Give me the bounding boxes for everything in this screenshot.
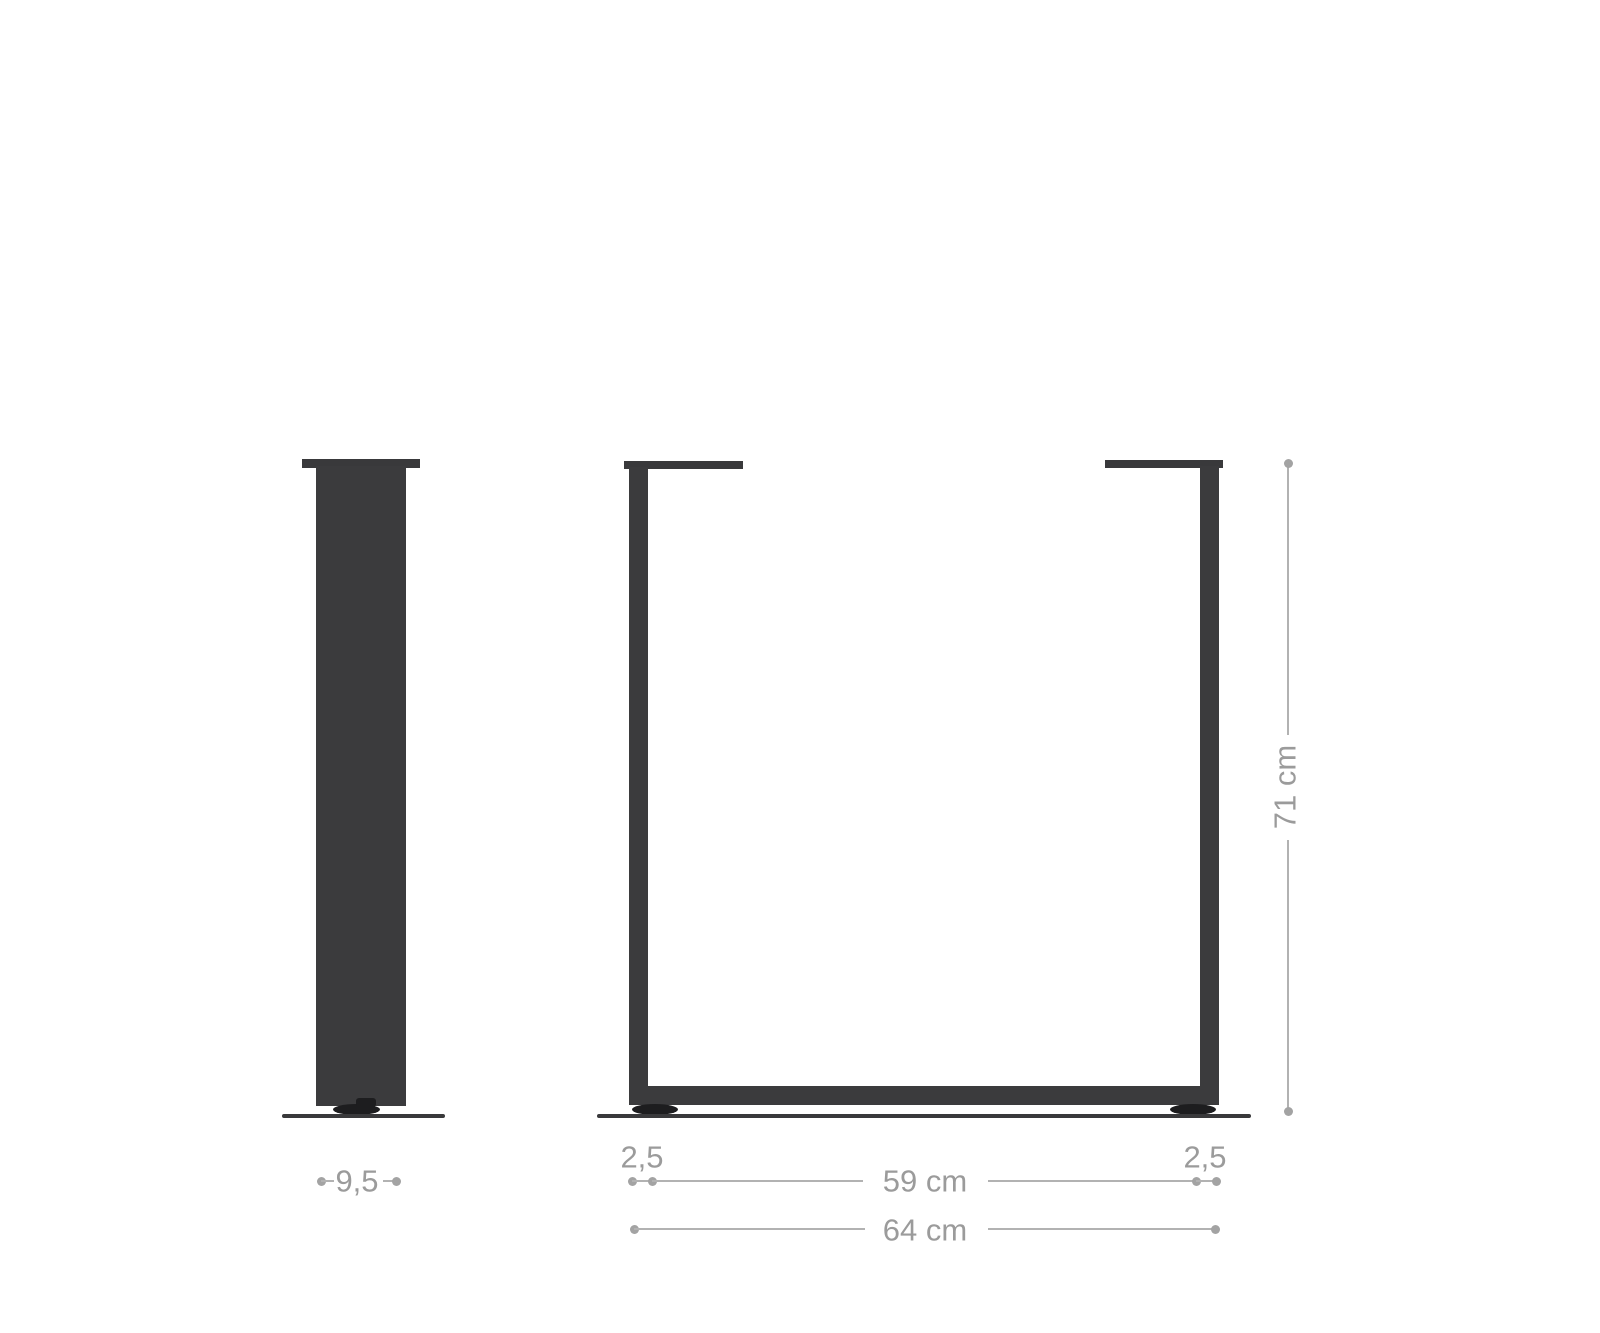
side-view-floor-line	[282, 1114, 445, 1118]
dim-right-profile-label: 2,5	[1183, 1142, 1226, 1173]
dim-height-line-upper	[1287, 463, 1289, 735]
dim-inner-width-line-right	[988, 1180, 1196, 1182]
front-view-floor-line	[597, 1114, 1251, 1118]
front-view-right-leg	[1200, 466, 1219, 1105]
dim-outer-width-line-right	[988, 1228, 1215, 1230]
front-view-bottom-crossbar	[629, 1086, 1219, 1105]
dimension-diagram: 71 cm 9,5 2,5 2,5 59 cm 64 cm	[0, 0, 1600, 1333]
dim-outer-dot-right	[1211, 1225, 1220, 1234]
dim-height-line-lower	[1287, 840, 1289, 1111]
dim-height-dot-bottom	[1284, 1107, 1293, 1116]
dim-height-label: 71 cm	[1270, 745, 1301, 829]
side-view-leg-column	[316, 466, 406, 1106]
dim-inner-width-line-left	[652, 1180, 863, 1182]
dim-height-dot-top	[1284, 459, 1293, 468]
dim-side-width-dot-right	[392, 1177, 401, 1186]
dim-inner-dot-outer-right	[1212, 1177, 1221, 1186]
dim-left-profile-label: 2,5	[620, 1142, 663, 1173]
dim-outer-width-line-left	[634, 1228, 865, 1230]
side-view-foot-stem	[356, 1098, 376, 1107]
dim-outer-width-label: 64 cm	[883, 1215, 967, 1246]
dim-inner-width-label: 59 cm	[883, 1166, 967, 1197]
dim-side-width-label: 9,5	[335, 1166, 378, 1197]
dim-side-width-line-left	[321, 1180, 334, 1182]
front-view-left-leg	[629, 467, 648, 1105]
